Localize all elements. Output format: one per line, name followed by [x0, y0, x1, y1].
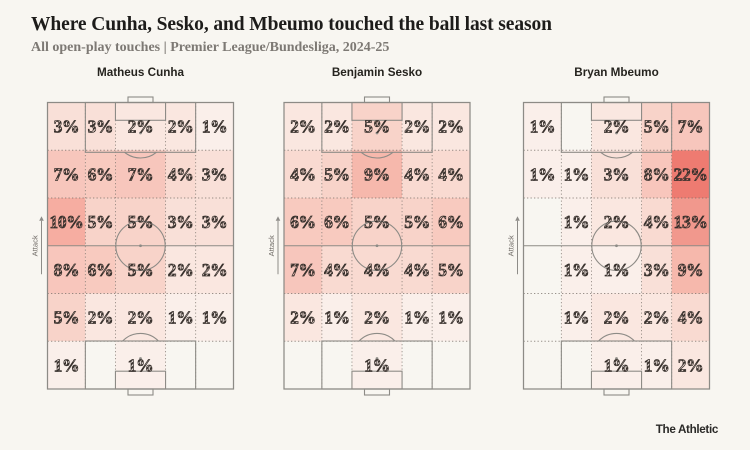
svg-text:2%: 2%	[364, 308, 390, 328]
svg-text:8%: 8%	[54, 260, 80, 280]
svg-text:10%: 10%	[49, 212, 83, 232]
svg-text:1%: 1%	[202, 308, 228, 328]
svg-text:7%: 7%	[290, 260, 316, 280]
svg-text:1%: 1%	[564, 260, 590, 280]
svg-text:3%: 3%	[202, 212, 228, 232]
svg-text:7%: 7%	[54, 164, 80, 184]
svg-text:2%: 2%	[604, 212, 630, 232]
svg-text:6%: 6%	[324, 212, 350, 232]
svg-text:4%: 4%	[438, 164, 464, 184]
svg-text:4%: 4%	[324, 260, 350, 280]
svg-text:2%: 2%	[168, 260, 194, 280]
svg-text:3%: 3%	[88, 117, 114, 137]
svg-text:1%: 1%	[324, 308, 350, 328]
svg-text:1%: 1%	[530, 164, 556, 184]
svg-text:7%: 7%	[128, 164, 154, 184]
svg-text:5%: 5%	[128, 260, 154, 280]
svg-text:9%: 9%	[364, 164, 390, 184]
svg-text:4%: 4%	[168, 164, 194, 184]
svg-text:6%: 6%	[88, 164, 114, 184]
svg-text:1%: 1%	[54, 355, 80, 375]
svg-text:6%: 6%	[438, 212, 464, 232]
svg-text:Attack: Attack	[31, 235, 40, 256]
svg-text:1%: 1%	[604, 355, 630, 375]
svg-text:8%: 8%	[644, 164, 670, 184]
svg-text:1%: 1%	[404, 308, 430, 328]
svg-text:5%: 5%	[364, 212, 390, 232]
svg-text:1%: 1%	[168, 308, 194, 328]
svg-text:7%: 7%	[678, 117, 704, 137]
svg-text:2%: 2%	[604, 308, 630, 328]
svg-text:1%: 1%	[438, 308, 464, 328]
svg-text:3%: 3%	[604, 164, 630, 184]
svg-text:4%: 4%	[364, 260, 390, 280]
svg-text:4%: 4%	[404, 164, 430, 184]
svg-text:1%: 1%	[564, 308, 590, 328]
svg-text:5%: 5%	[644, 117, 670, 137]
svg-text:2%: 2%	[324, 117, 350, 137]
svg-text:2%: 2%	[202, 260, 228, 280]
svg-text:2%: 2%	[604, 117, 630, 137]
svg-text:3%: 3%	[202, 164, 228, 184]
svg-text:2%: 2%	[290, 308, 316, 328]
svg-text:5%: 5%	[324, 164, 350, 184]
svg-text:22%: 22%	[674, 164, 708, 184]
svg-text:3%: 3%	[644, 260, 670, 280]
svg-text:2%: 2%	[404, 117, 430, 137]
svg-text:1%: 1%	[202, 117, 228, 137]
svg-text:5%: 5%	[364, 117, 390, 137]
svg-text:1%: 1%	[530, 117, 556, 137]
svg-text:Attack: Attack	[267, 235, 276, 256]
svg-text:6%: 6%	[290, 212, 316, 232]
svg-text:1%: 1%	[564, 164, 590, 184]
svg-text:2%: 2%	[438, 117, 464, 137]
svg-text:4%: 4%	[404, 260, 430, 280]
svg-text:1%: 1%	[364, 355, 390, 375]
svg-text:5%: 5%	[404, 212, 430, 232]
svg-text:Attack: Attack	[507, 235, 516, 256]
svg-text:1%: 1%	[604, 260, 630, 280]
svg-text:3%: 3%	[54, 117, 80, 137]
svg-text:5%: 5%	[54, 308, 80, 328]
svg-text:9%: 9%	[678, 260, 704, 280]
svg-text:2%: 2%	[290, 117, 316, 137]
svg-text:5%: 5%	[88, 212, 114, 232]
svg-text:2%: 2%	[644, 308, 670, 328]
svg-text:5%: 5%	[438, 260, 464, 280]
svg-text:2%: 2%	[128, 308, 154, 328]
svg-text:1%: 1%	[128, 355, 154, 375]
svg-text:2%: 2%	[678, 355, 704, 375]
svg-text:4%: 4%	[678, 308, 704, 328]
svg-text:1%: 1%	[644, 355, 670, 375]
svg-text:2%: 2%	[168, 117, 194, 137]
svg-text:4%: 4%	[290, 164, 316, 184]
svg-text:6%: 6%	[88, 260, 114, 280]
svg-text:3%: 3%	[168, 212, 194, 232]
svg-text:13%: 13%	[674, 212, 708, 232]
svg-text:4%: 4%	[644, 212, 670, 232]
svg-text:2%: 2%	[88, 308, 114, 328]
svg-text:1%: 1%	[564, 212, 590, 232]
svg-text:2%: 2%	[128, 117, 154, 137]
svg-text:5%: 5%	[128, 212, 154, 232]
